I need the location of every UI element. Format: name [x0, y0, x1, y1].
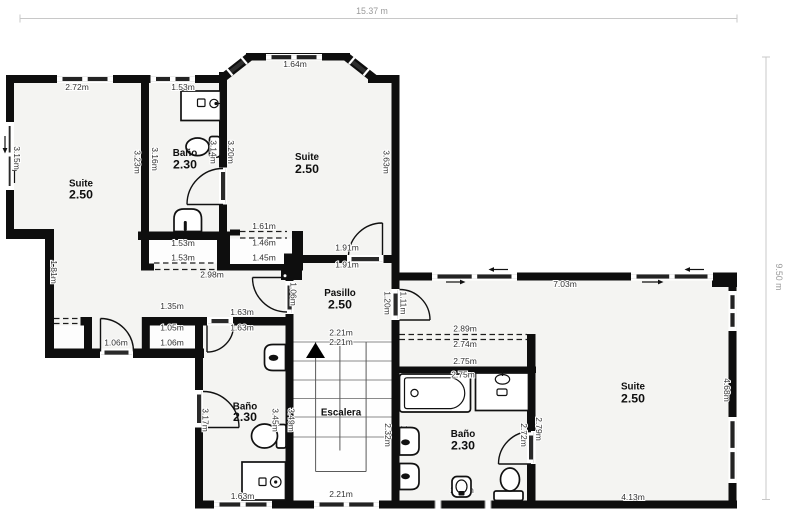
- svg-text:2.89m: 2.89m: [453, 324, 477, 334]
- svg-text:2.74m: 2.74m: [453, 339, 477, 349]
- svg-text:2.50: 2.50: [295, 162, 319, 176]
- svg-text:2.21m: 2.21m: [329, 328, 353, 338]
- svg-text:3.15m: 3.15m: [12, 146, 22, 170]
- svg-text:1.81m: 1.81m: [49, 260, 59, 284]
- svg-text:4.13m: 4.13m: [621, 492, 645, 502]
- svg-text:1.63m: 1.63m: [230, 323, 254, 333]
- svg-text:3.20m: 3.20m: [226, 140, 236, 164]
- svg-text:1.53m: 1.53m: [171, 82, 195, 92]
- svg-text:9.50 m: 9.50 m: [774, 264, 784, 291]
- svg-text:1.46m: 1.46m: [252, 238, 276, 248]
- svg-text:4.68m: 4.68m: [722, 378, 732, 402]
- svg-text:2.72m: 2.72m: [519, 423, 529, 447]
- svg-text:1.64m: 1.64m: [283, 59, 307, 69]
- svg-text:1.05m: 1.05m: [160, 323, 184, 333]
- svg-text:3.23m: 3.23m: [133, 150, 143, 174]
- svg-text:2.50: 2.50: [621, 392, 645, 406]
- svg-text:1.63m: 1.63m: [230, 307, 254, 317]
- svg-text:1.91m: 1.91m: [335, 243, 359, 253]
- svg-text:2.30: 2.30: [233, 410, 257, 424]
- svg-text:1.06m: 1.06m: [289, 282, 299, 306]
- svg-text:2.32m: 2.32m: [383, 423, 393, 447]
- svg-text:1.20m: 1.20m: [383, 291, 393, 315]
- svg-text:2.21m: 2.21m: [329, 489, 353, 499]
- svg-text:1.53m: 1.53m: [171, 238, 195, 248]
- svg-text:1.91m: 1.91m: [335, 260, 359, 270]
- svg-text:15.37 m: 15.37 m: [356, 6, 388, 16]
- svg-text:2.79m: 2.79m: [534, 417, 544, 441]
- svg-text:3.45m: 3.45m: [271, 408, 281, 432]
- svg-text:3.49m: 3.49m: [287, 408, 297, 432]
- svg-text:1.53m: 1.53m: [171, 253, 195, 263]
- svg-text:1.11m: 1.11m: [399, 292, 409, 315]
- svg-text:7.03m: 7.03m: [553, 279, 577, 289]
- svg-text:2.50: 2.50: [328, 298, 352, 312]
- svg-text:2.50: 2.50: [69, 188, 93, 202]
- svg-text:1.06m: 1.06m: [160, 338, 184, 348]
- svg-text:2.30: 2.30: [173, 158, 197, 172]
- svg-text:1.61m: 1.61m: [252, 221, 276, 231]
- svg-text:2.72m: 2.72m: [65, 82, 89, 92]
- svg-text:1.63m: 1.63m: [231, 491, 255, 501]
- svg-text:2.75m: 2.75m: [453, 356, 477, 366]
- svg-text:1.06m: 1.06m: [104, 338, 128, 348]
- svg-text:1.45m: 1.45m: [252, 253, 276, 263]
- svg-text:2.30: 2.30: [451, 439, 475, 453]
- svg-text:3.14m: 3.14m: [209, 140, 219, 164]
- svg-text:2.75m: 2.75m: [451, 370, 475, 380]
- svg-text:3.17m: 3.17m: [201, 408, 211, 432]
- svg-text:2.98m: 2.98m: [200, 270, 224, 280]
- svg-text:Escalera: Escalera: [321, 408, 362, 419]
- svg-text:2.21m: 2.21m: [329, 337, 353, 347]
- svg-text:3.63m: 3.63m: [382, 150, 392, 174]
- svg-text:1.35m: 1.35m: [160, 301, 184, 311]
- svg-text:3.16m: 3.16m: [150, 147, 160, 171]
